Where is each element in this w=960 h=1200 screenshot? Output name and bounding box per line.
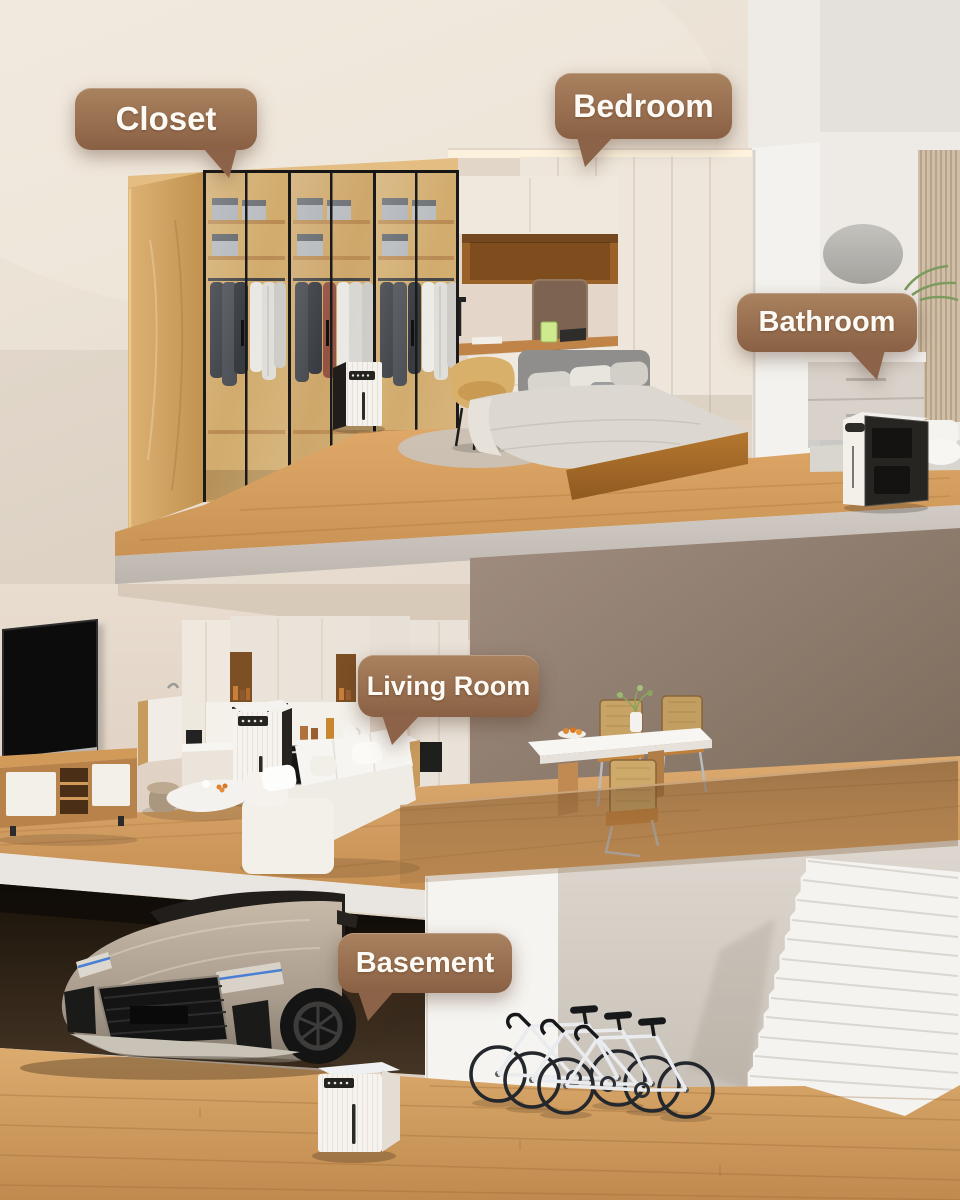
coffee-table <box>142 779 258 821</box>
label-tail <box>382 715 422 746</box>
label-living-room: Living Room <box>358 655 539 717</box>
dehumidifier-bathroom <box>843 412 928 514</box>
label-tail <box>358 991 398 1022</box>
house-cutaway-render: Closet Bedroom Bathroom Living Room Base… <box>0 0 960 1200</box>
label-tail <box>849 350 889 381</box>
label-bathroom: Bathroom <box>737 293 917 352</box>
label-tail <box>203 148 243 179</box>
label-bedroom-text: Bedroom <box>573 88 713 125</box>
label-bathroom-text: Bathroom <box>759 306 896 339</box>
label-tail <box>577 137 617 168</box>
scene-art <box>0 0 960 1200</box>
dehumidifier-basement <box>312 1062 400 1163</box>
dehumidifier-closet <box>331 362 385 434</box>
label-bedroom: Bedroom <box>555 73 732 139</box>
fluted-panel <box>918 150 960 422</box>
label-closet-text: Closet <box>116 100 217 138</box>
label-closet: Closet <box>75 88 257 150</box>
desk-lamp <box>541 322 557 342</box>
bathroom-mirror <box>823 224 903 284</box>
label-living-room-text: Living Room <box>367 671 531 702</box>
tv <box>3 620 104 766</box>
car-shadow <box>20 1056 340 1080</box>
label-basement: Basement <box>338 933 512 993</box>
label-basement-text: Basement <box>356 947 495 980</box>
